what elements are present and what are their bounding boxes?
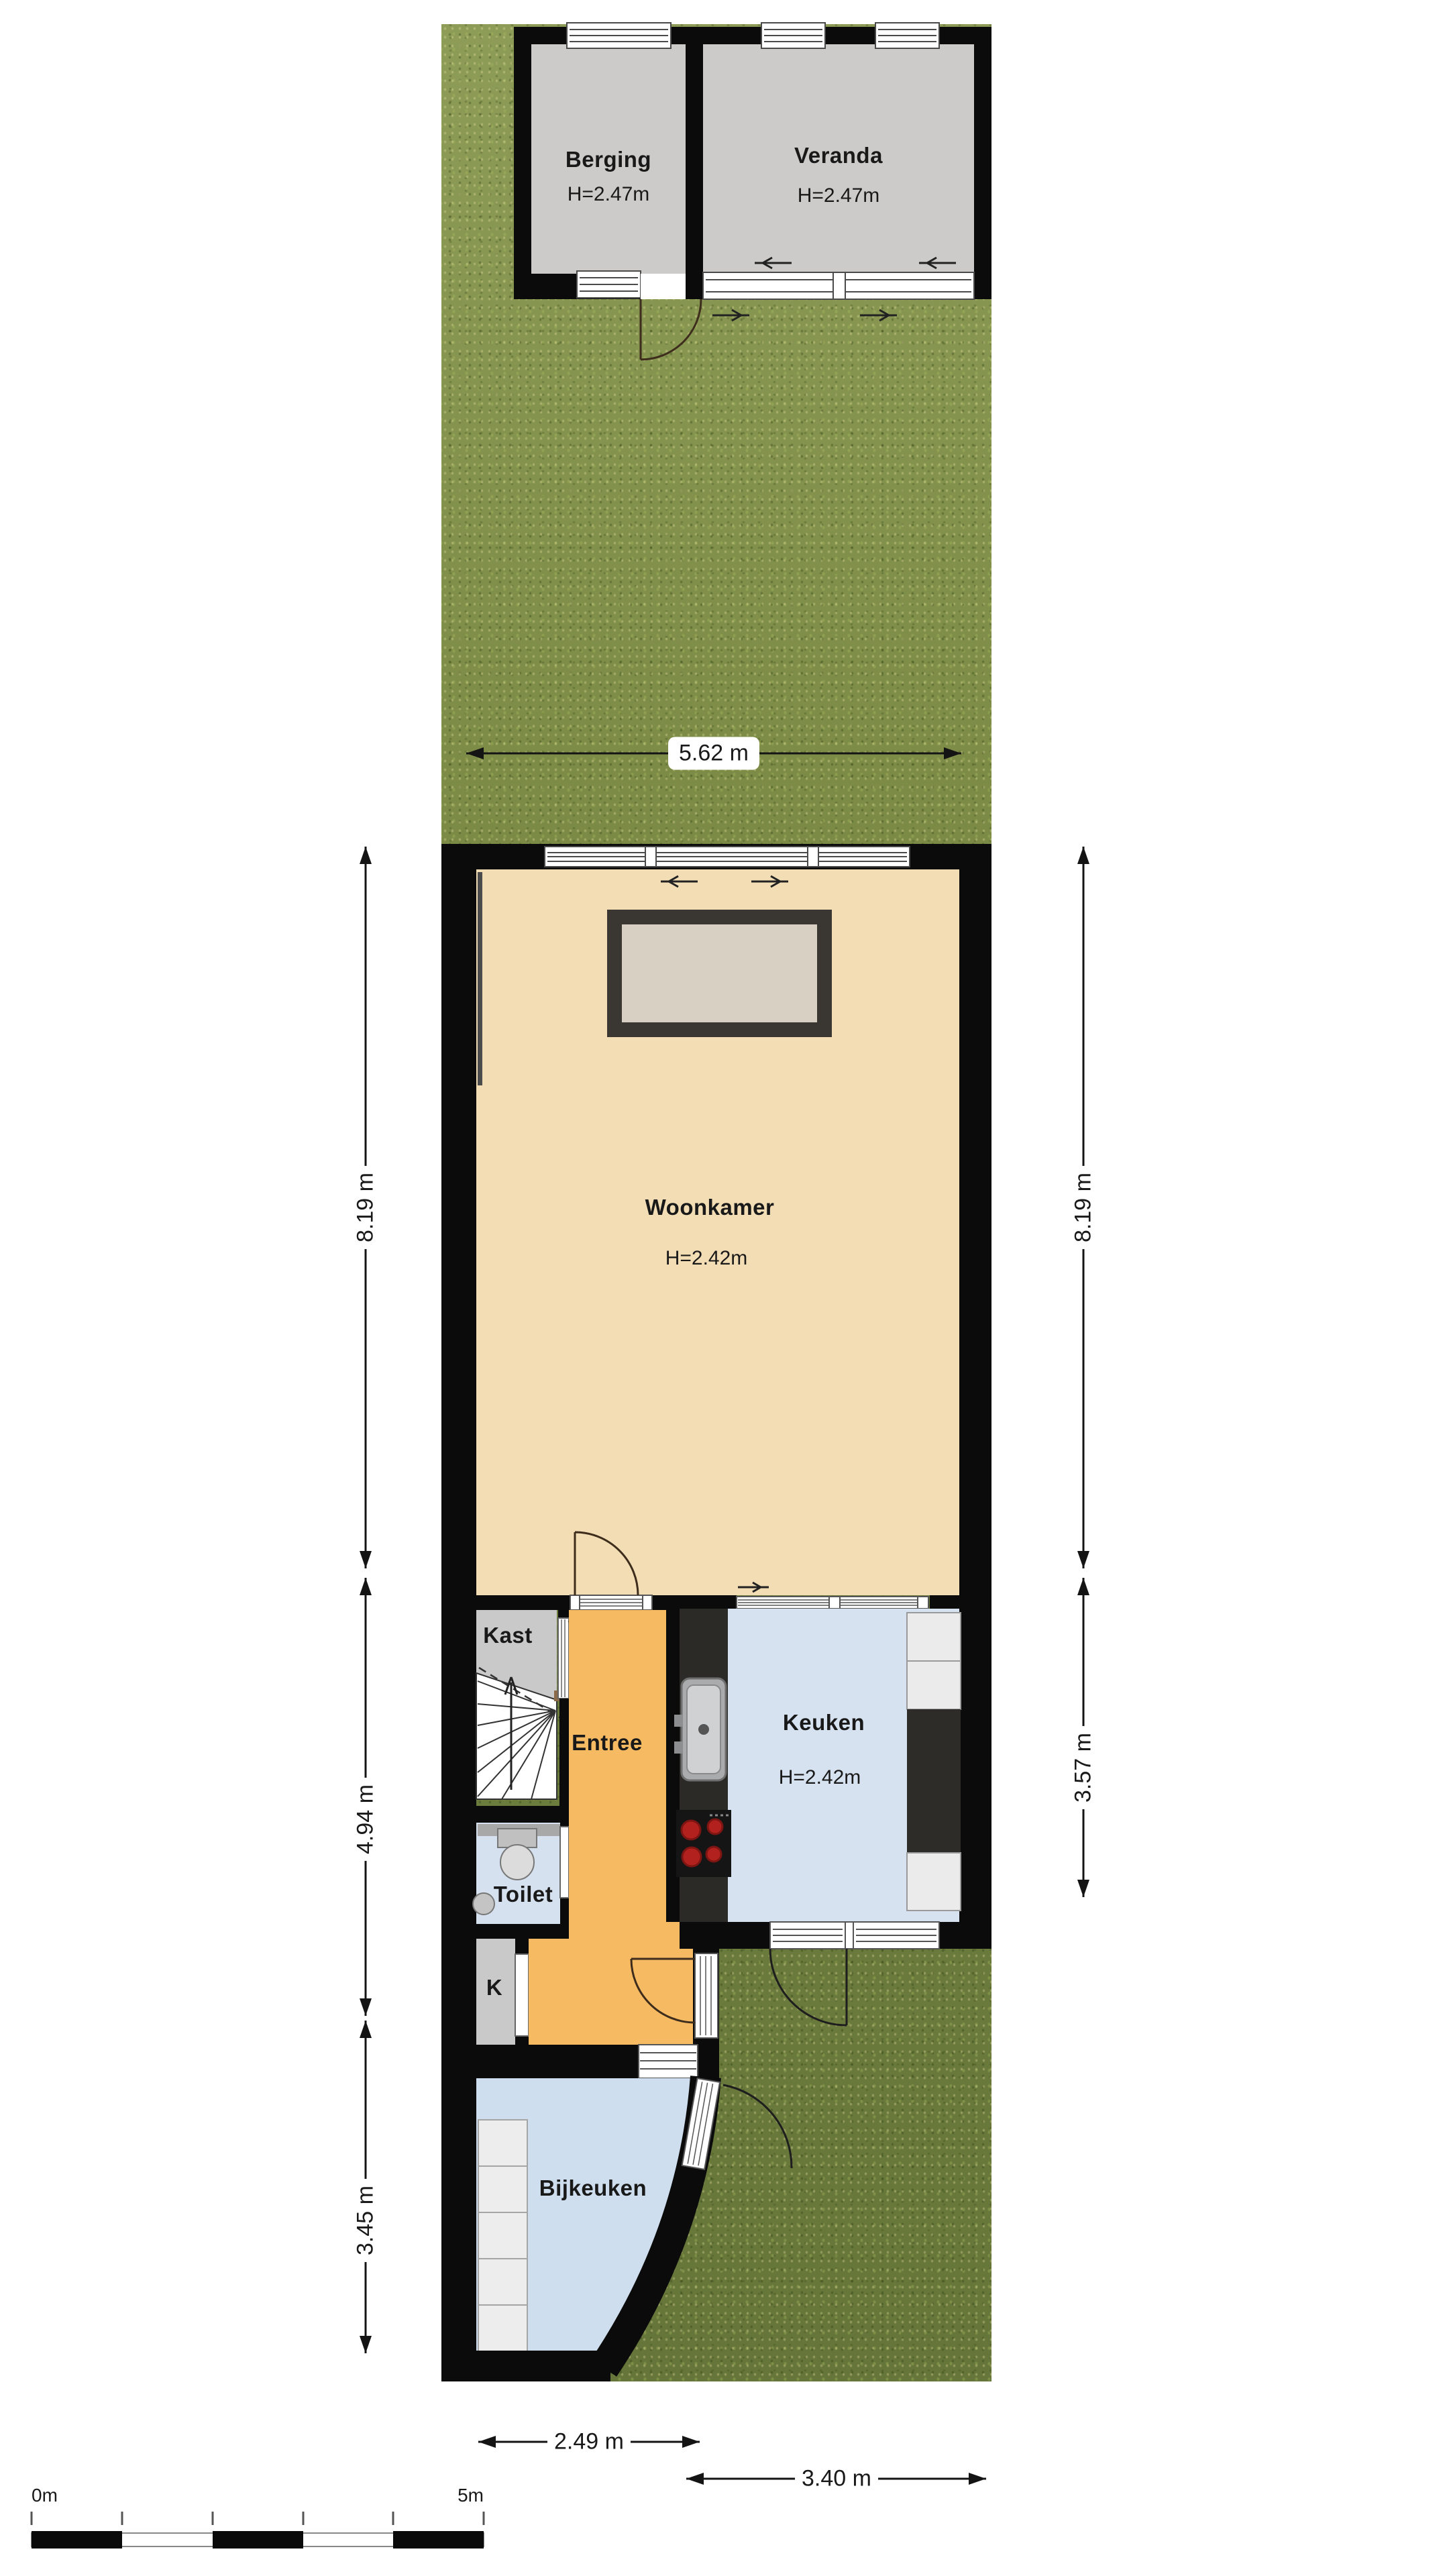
toilet-bowl-icon — [500, 1845, 534, 1880]
dimension-utility-depth: 3.45 m — [352, 2179, 380, 2262]
kitchen-sink-icon — [674, 1678, 726, 1780]
wall-line — [478, 872, 482, 1085]
bijkeuken-room — [441, 2077, 792, 2381]
dimension-utility-width: 2.49 m — [547, 2428, 631, 2457]
bijkeuken-garden-door-arc — [723, 2085, 792, 2168]
scale-end-label: 5m — [458, 2485, 484, 2506]
living-room-void — [607, 910, 832, 1037]
floor-plan-drawing — [0, 0, 1449, 2576]
dimension-hall-depth: 4.94 m — [352, 1778, 380, 1861]
berging-label: Berging — [566, 147, 651, 172]
entree-label: Entree — [572, 1730, 643, 1756]
woonkamer-label: Woonkamer — [645, 1195, 775, 1220]
hall-wall — [559, 1699, 569, 1806]
hand-basin-icon — [473, 1893, 494, 1915]
berging-height: H=2.47m — [568, 183, 650, 206]
floor-plan: Berging H=2.47m Veranda H=2.47m Woonkame… — [0, 0, 1449, 2576]
kitchen-cabinets-right — [907, 1613, 961, 1911]
dimension-kitchen-depth: 3.57 m — [1069, 1726, 1098, 1809]
k-door — [515, 1954, 529, 2036]
scale-start-label: 0m — [32, 2485, 58, 2506]
woonkamer-height: H=2.42m — [665, 1247, 748, 1270]
stove-icon — [676, 1810, 731, 1877]
toilet-label: Toilet — [494, 1882, 553, 1907]
veranda-height: H=2.47m — [798, 184, 880, 207]
toilet-door — [560, 1827, 569, 1898]
dimension-living-depth-left: 8.19 m — [352, 1166, 380, 1249]
dimension-kitchen-width: 3.40 m — [795, 2465, 878, 2493]
keuken-height: H=2.42m — [779, 1766, 861, 1789]
veranda-label: Veranda — [794, 143, 883, 168]
slide-arrow-right-icon — [712, 310, 749, 321]
k-label: K — [486, 1975, 502, 2000]
keuken-door-arc — [770, 1949, 847, 2025]
utility-cabinets — [478, 2120, 527, 2352]
bijkeuken-label: Bijkeuken — [539, 2176, 647, 2201]
slide-arrow-right-icon — [860, 310, 897, 321]
kast-label: Kast — [483, 1623, 533, 1648]
keuken-label: Keuken — [783, 1710, 865, 1735]
scale-bar — [32, 2512, 484, 2548]
dimension-garden-width: 5.62 m — [668, 737, 759, 770]
dimension-living-depth-right: 8.19 m — [1069, 1166, 1098, 1249]
